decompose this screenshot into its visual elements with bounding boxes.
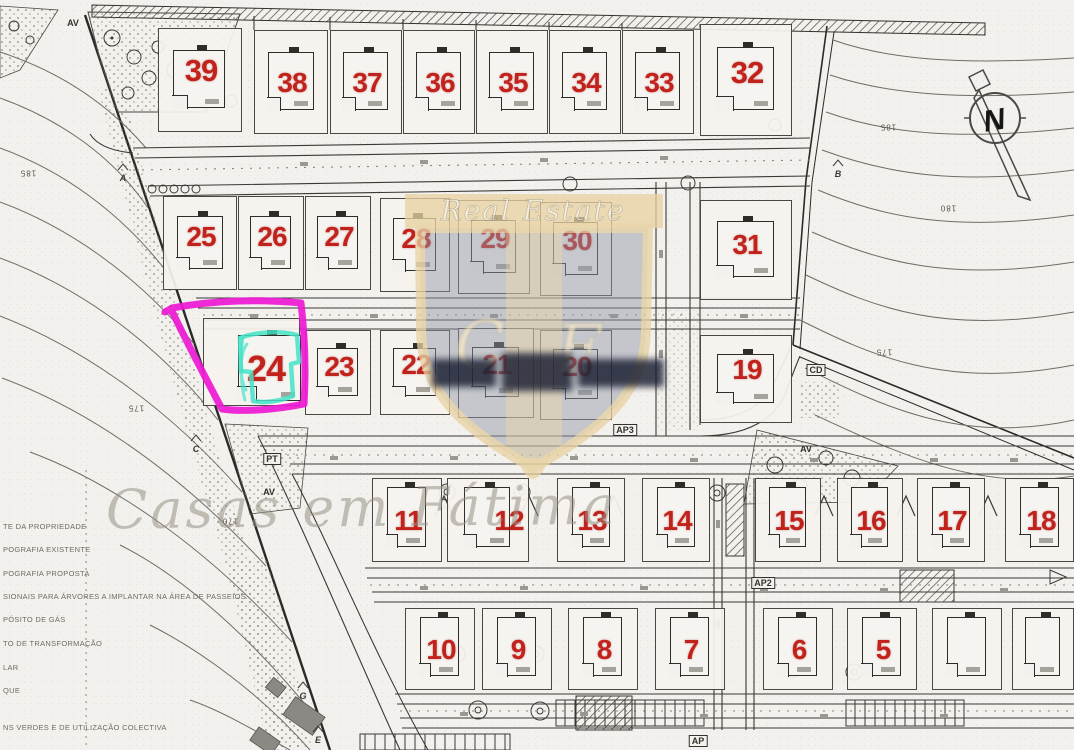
highlight-annotation-teal-echo [241, 336, 247, 400]
highlight-annotations [0, 0, 1074, 750]
highlight-annotation-teal [240, 332, 299, 402]
site-plan-image: N TE DA PROPRIEDADEPOGRAFIA EXISTENTEPOG… [0, 0, 1074, 750]
highlight-annotation-magenta [165, 301, 305, 411]
